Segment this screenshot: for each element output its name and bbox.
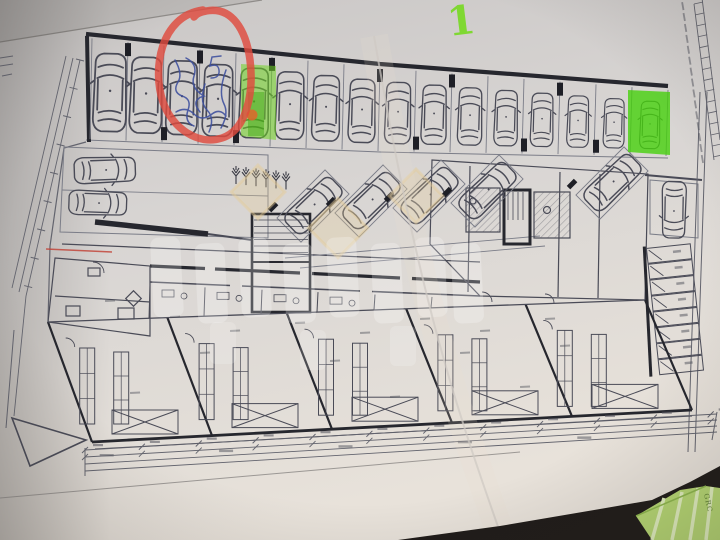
vignette: [0, 0, 720, 540]
photo-of-floor-plan: 1 GRC: [0, 0, 720, 540]
floor-plan-photo: 1 GRC: [0, 0, 720, 540]
